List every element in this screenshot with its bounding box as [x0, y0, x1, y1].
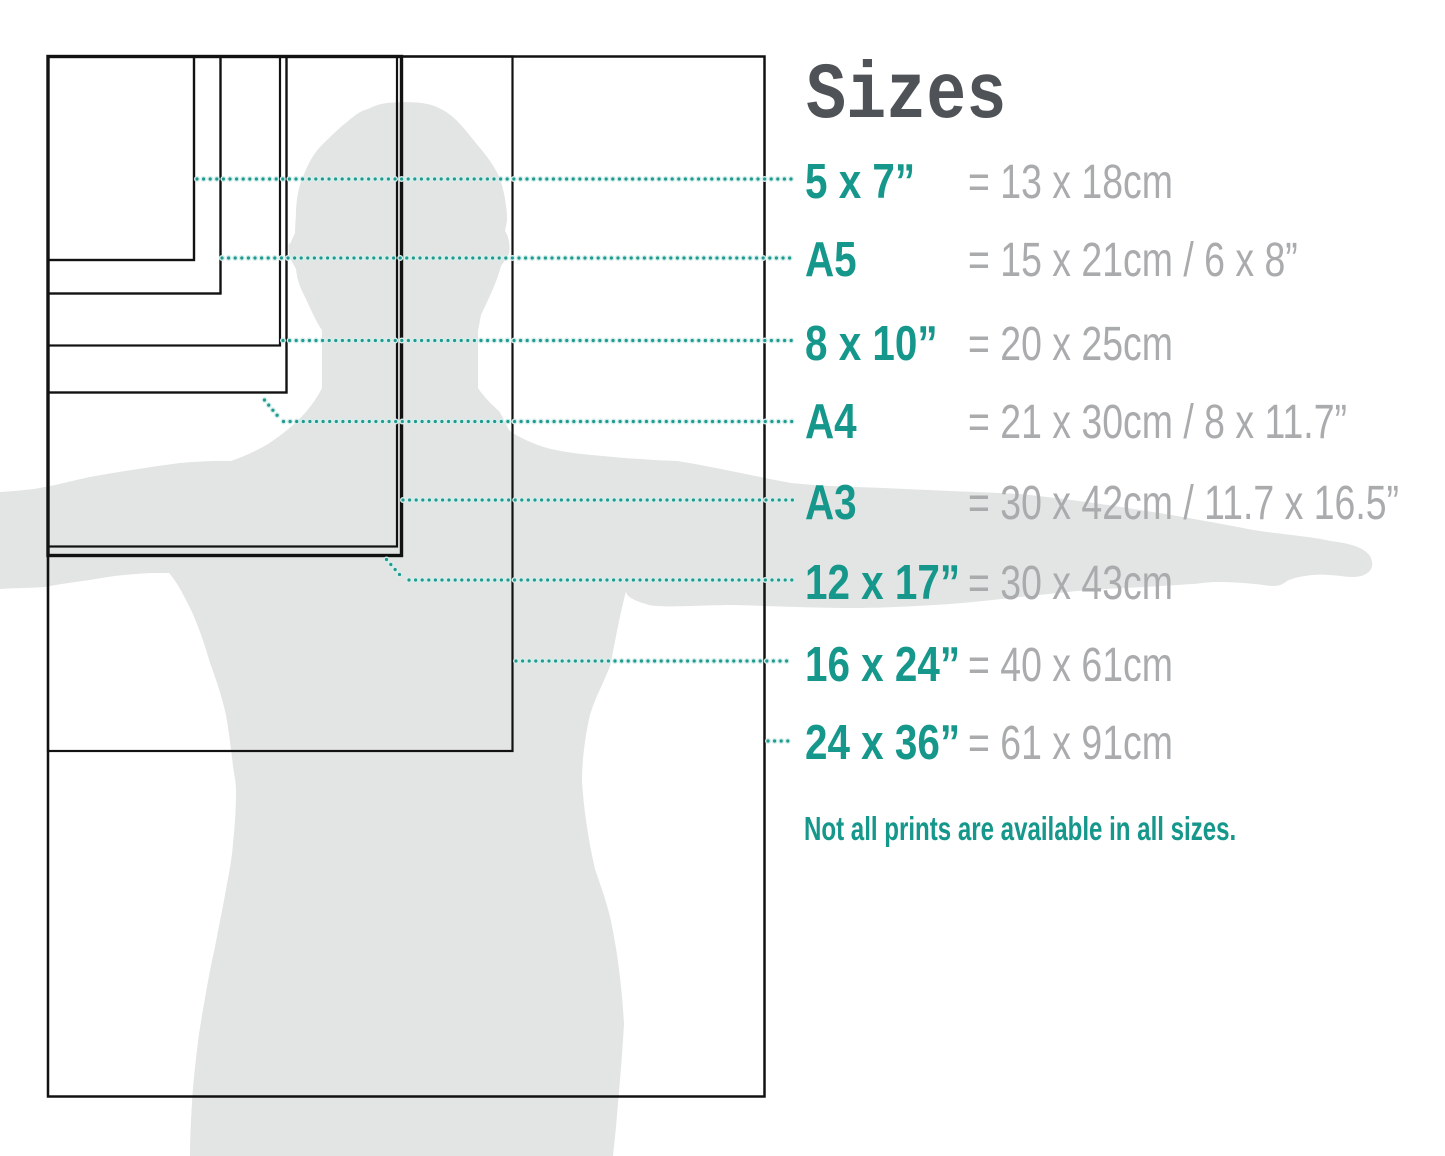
svg-text:= 21 x 30cm / 8 x 11.7”: = 21 x 30cm / 8 x 11.7” [968, 396, 1347, 450]
svg-text:A3: A3 [805, 474, 857, 530]
svg-text:12 x 17”: 12 x 17” [805, 554, 960, 610]
svg-text:16 x 24”: 16 x 24” [805, 636, 960, 692]
svg-text:Sizes: Sizes [806, 52, 1006, 142]
svg-text:A5: A5 [805, 231, 857, 287]
svg-text:A4: A4 [805, 393, 857, 449]
svg-text:Not all prints are available i: Not all prints are available in all size… [804, 811, 1236, 848]
svg-text:24 x 36”: 24 x 36” [805, 714, 960, 770]
svg-text:5 x 7”: 5 x 7” [805, 153, 915, 209]
svg-text:8 x 10”: 8 x 10” [805, 315, 938, 371]
svg-text:= 61 x 91cm: = 61 x 91cm [968, 717, 1173, 771]
svg-text:= 40 x 61cm: = 40 x 61cm [968, 639, 1173, 693]
svg-text:= 20 x 25cm: = 20 x 25cm [968, 318, 1173, 372]
svg-text:= 15 x 21cm / 6 x 8”: = 15 x 21cm / 6 x 8” [968, 234, 1298, 288]
svg-text:= 13 x 18cm: = 13 x 18cm [968, 156, 1173, 210]
svg-text:= 30 x 43cm: = 30 x 43cm [968, 557, 1173, 611]
svg-text:= 30 x 42cm / 11.7 x 16.5”: = 30 x 42cm / 11.7 x 16.5” [968, 477, 1399, 531]
